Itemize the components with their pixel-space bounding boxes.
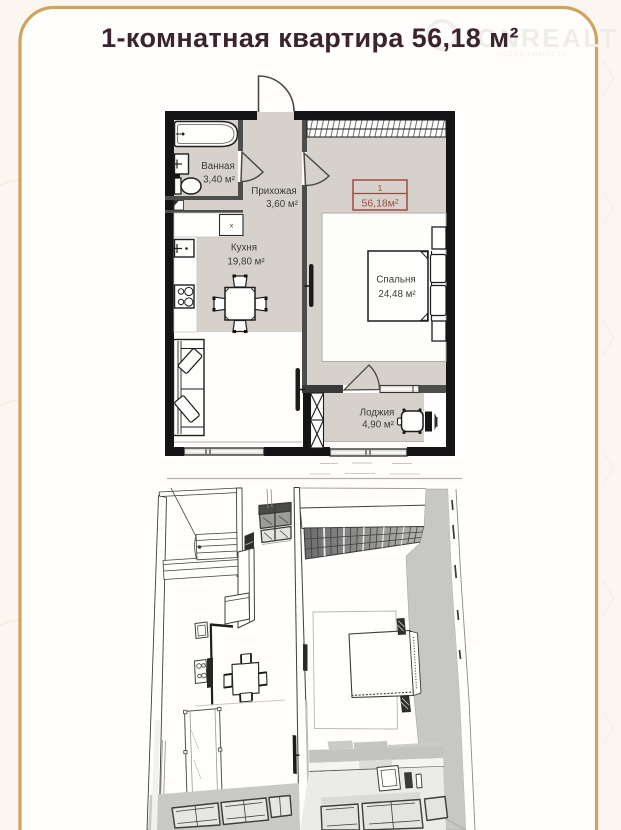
svg-text:Ванная: Ванная (201, 161, 235, 172)
svg-text:1: 1 (378, 183, 383, 193)
svg-text:Спальня: Спальня (376, 275, 415, 286)
svg-text:Лоджия: Лоджия (360, 408, 395, 419)
svg-text:24,48 м²: 24,48 м² (378, 289, 416, 300)
svg-text:3,60 м²: 3,60 м² (266, 199, 299, 210)
svg-text:56,18м²: 56,18м² (362, 198, 399, 210)
svg-text:1-комнатная квартира 56,18 м²: 1-комнатная квартира 56,18 м² (101, 23, 519, 53)
svg-text:Прихожая: Прихожая (251, 186, 296, 197)
svg-text:3,40 м²: 3,40 м² (203, 175, 236, 186)
svg-text:4,90 м²: 4,90 м² (362, 420, 395, 431)
svg-text:Кухня: Кухня (231, 243, 257, 254)
svg-text:19,80 м²: 19,80 м² (227, 257, 265, 268)
